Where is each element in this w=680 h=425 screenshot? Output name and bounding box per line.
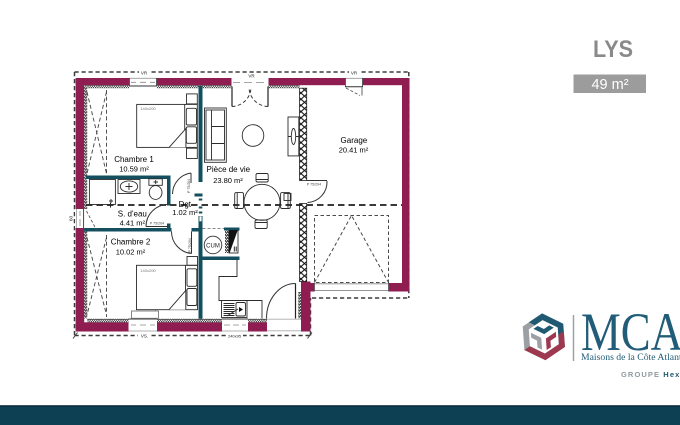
svg-text:VR: VR [351, 71, 358, 76]
svg-text:VR: VR [141, 71, 148, 76]
svg-text:Maisons de la Côte Atlantique: Maisons de la Côte Atlantique [581, 352, 680, 363]
svg-text:49 m²: 49 m² [591, 77, 628, 93]
svg-text:140x200: 140x200 [140, 106, 156, 111]
svg-text:Chambre 2: Chambre 2 [111, 238, 151, 247]
svg-text:CUM: CUM [206, 243, 220, 249]
svg-text:140x200: 140x200 [140, 268, 156, 273]
svg-text:Chambre 1: Chambre 1 [114, 155, 154, 164]
svg-text:GROUPE Hexaôm: GROUPE Hexaôm [621, 370, 680, 379]
svg-text:20.41 m²: 20.41 m² [339, 146, 369, 155]
svg-text:VS.: VS. [141, 334, 148, 339]
svg-text:P 75/204: P 75/204 [307, 182, 321, 186]
svg-text:P 75/204: P 75/204 [150, 222, 164, 226]
svg-text:P 75/204: P 75/204 [187, 179, 191, 193]
svg-text:60: 60 [69, 216, 75, 222]
svg-text:VR: VR [248, 73, 255, 78]
svg-text:4.41 m²: 4.41 m² [120, 219, 146, 228]
svg-text:LYS: LYS [593, 36, 633, 63]
svg-text:10.02 m²: 10.02 m² [116, 248, 146, 257]
svg-text:1.02 m²: 1.02 m² [172, 208, 198, 217]
svg-text:23.80 m²: 23.80 m² [213, 176, 243, 185]
svg-text:10.59 m²: 10.59 m² [119, 165, 149, 174]
svg-text:240x95: 240x95 [228, 333, 242, 338]
svg-text:S. d'eau: S. d'eau [118, 210, 147, 219]
svg-text:P 75/204: P 75/204 [188, 238, 192, 252]
svg-text:Garage: Garage [341, 136, 368, 145]
svg-text:Pièce de vie: Pièce de vie [207, 165, 251, 174]
